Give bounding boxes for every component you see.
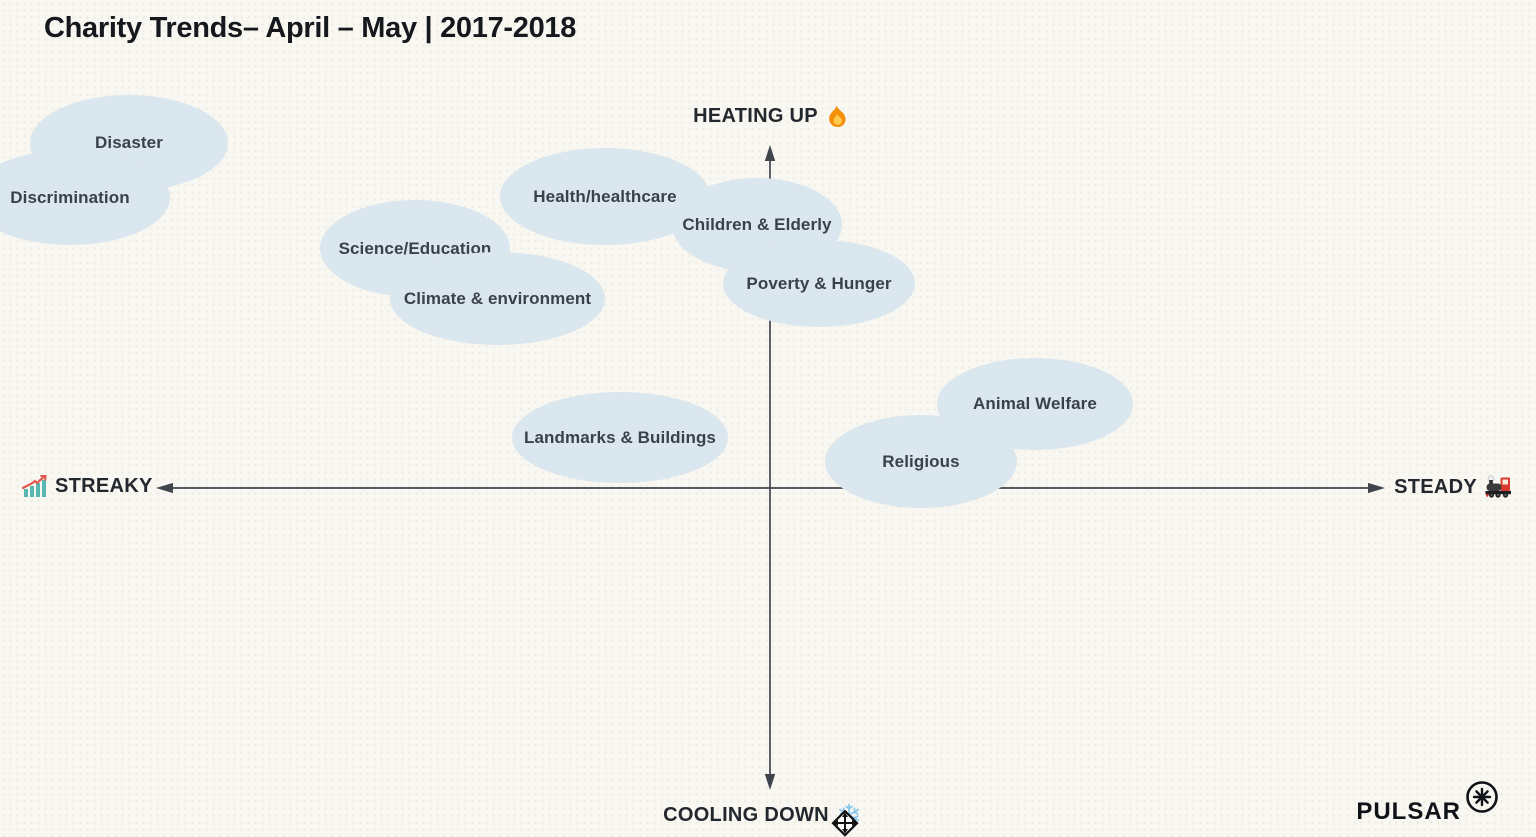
bubble-label: Religious <box>882 452 959 472</box>
bubble: Religious <box>825 415 1017 508</box>
bubble-label: Disaster <box>95 133 163 153</box>
starburst-circle-icon <box>1464 779 1500 815</box>
bubble-label: Health/healthcare <box>533 187 676 207</box>
bubble-label: Climate & environment <box>404 289 591 309</box>
axis-label-text: STEADY <box>1394 476 1477 499</box>
fire-icon <box>826 105 847 128</box>
bubble-label: Animal Welfare <box>973 394 1097 414</box>
bubble: Landmarks & Buildings <box>512 392 728 483</box>
bubble: Poverty & Hunger <box>723 240 915 327</box>
bubble-label: Landmarks & Buildings <box>524 428 716 448</box>
pulsar-logo: PULSAR <box>1356 779 1500 827</box>
locomotive-icon <box>1485 475 1512 499</box>
axis-label-steady: STEADY <box>1394 475 1512 499</box>
bubble-label: Discrimination <box>10 188 129 208</box>
axis-label-streaky: STREAKY <box>22 475 153 498</box>
bubble-label: Poverty & Hunger <box>746 274 891 294</box>
chart-canvas[interactable]: Charity Trends– April – May | 2017-2018 … <box>0 0 1536 837</box>
bubble-label: Children & Elderly <box>682 215 831 235</box>
move-cursor-icon <box>831 810 859 837</box>
chart-increasing-icon <box>22 475 47 498</box>
axis-label-text: COOLING DOWN <box>663 804 829 827</box>
axis-label-heating-up: HEATING UP <box>693 105 847 128</box>
axis-label-text: HEATING UP <box>693 105 818 128</box>
axis-label-text: STREAKY <box>55 475 153 498</box>
pulsar-logo-text: PULSAR <box>1356 800 1461 827</box>
bubble: Climate & environment <box>390 252 605 345</box>
